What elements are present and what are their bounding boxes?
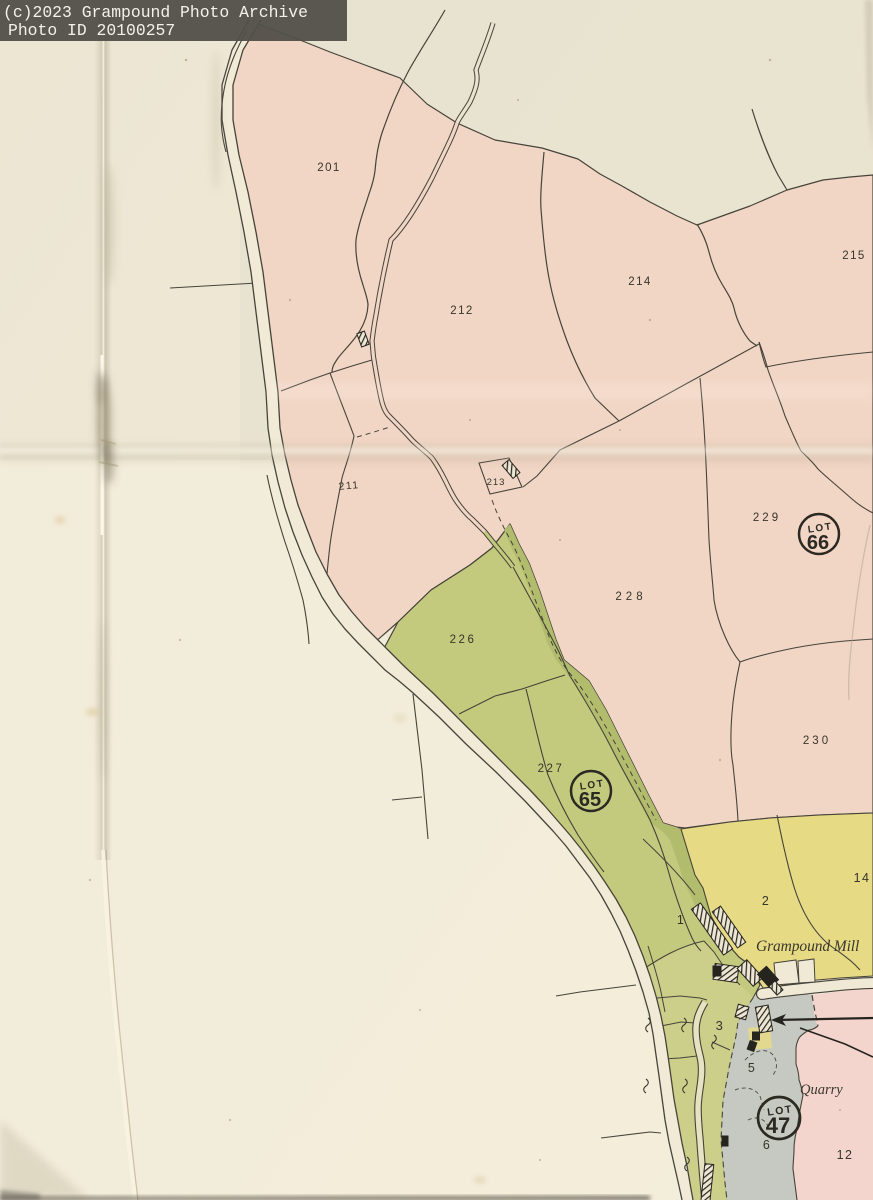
svg-text:Photo ID 20100257: Photo ID 20100257	[8, 21, 175, 40]
svg-text:2: 2	[762, 894, 770, 908]
svg-text:215: 215	[842, 250, 865, 262]
svg-text:3: 3	[716, 1018, 725, 1033]
svg-text:Quarry: Quarry	[800, 1082, 843, 1098]
svg-text:6: 6	[763, 1138, 771, 1152]
svg-text:1: 1	[677, 913, 685, 927]
svg-text:14: 14	[854, 871, 871, 885]
svg-text:5: 5	[748, 1061, 756, 1075]
svg-text:214: 214	[628, 276, 651, 288]
svg-text:201: 201	[317, 162, 340, 174]
svg-text:65: 65	[579, 789, 601, 811]
svg-text:211: 211	[338, 479, 360, 493]
svg-text:230: 230	[803, 735, 831, 747]
svg-text:229: 229	[753, 512, 781, 524]
svg-text:227: 227	[538, 763, 565, 775]
svg-text:47: 47	[766, 1113, 790, 1138]
svg-text:213: 213	[487, 477, 506, 488]
svg-text:12: 12	[837, 1148, 854, 1162]
svg-text:226: 226	[450, 634, 477, 646]
svg-text:(c)2023 Grampound Photo Archiv: (c)2023 Grampound Photo Archive	[3, 3, 308, 22]
svg-text:212: 212	[450, 305, 473, 317]
svg-text:66: 66	[807, 532, 829, 554]
svg-text:228: 228	[615, 591, 646, 603]
svg-text:Grampound Mill: Grampound Mill	[756, 938, 859, 955]
